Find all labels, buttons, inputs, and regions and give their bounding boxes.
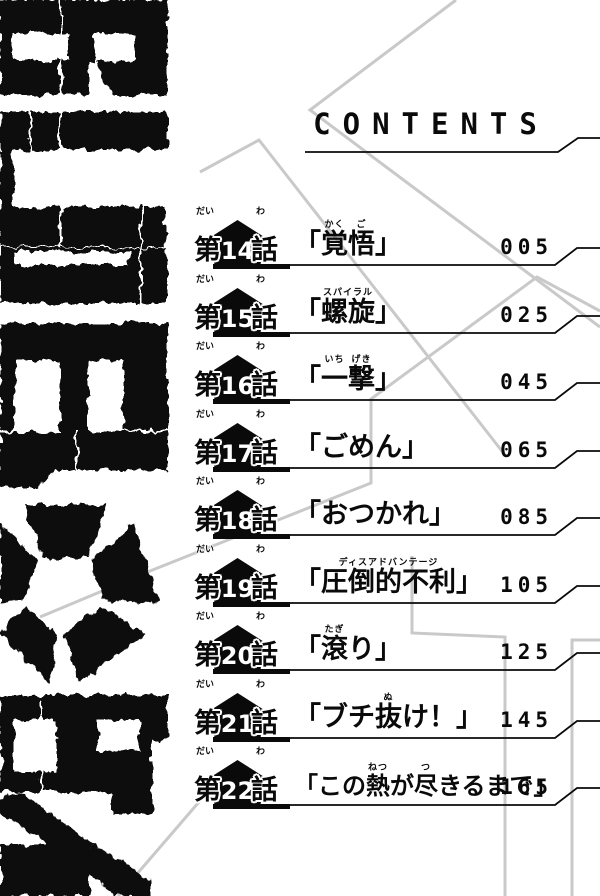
chapter-badge: 19 第 話 だい わ	[194, 555, 286, 605]
chapter-suffix: 話	[251, 304, 278, 334]
chapter-title: 「 おつかれ 」	[294, 492, 456, 531]
chapter-row: 19 第 話 だい わ 「 圧倒的不利ディスアドバンテージ 」 105	[194, 543, 600, 605]
contents-title: CONTENTS	[300, 107, 562, 143]
close-bracket: 」	[456, 695, 483, 734]
chapter-title-text: ごめん	[321, 425, 402, 464]
chapter-title: 「 滾たぎり 」	[294, 625, 402, 666]
chapter-suffix-furigana: わ	[256, 677, 265, 690]
chapter-title: 「 圧倒的不利ディスアドバンテージ 」	[294, 558, 483, 599]
title-kanji-with-furigana: 螺旋スパイラル	[321, 297, 375, 328]
chapter-title: 「 螺旋スパイラル 」	[294, 288, 402, 329]
open-bracket: 「	[294, 492, 321, 531]
chapter-title-text: ブチ抜ぬけ！	[321, 693, 456, 734]
chapter-row: 16 第 話 だい わ 「 一いち撃げき 」 045	[194, 340, 600, 402]
chapter-suffix: 話	[251, 776, 278, 806]
chapter-suffix-furigana: わ	[256, 272, 265, 285]
title-kanji-with-furigana: 尽つ	[414, 772, 438, 800]
chapter-suffix: 話	[251, 641, 278, 671]
title-kanji: 滾	[321, 634, 348, 665]
close-bracket: 」	[456, 560, 483, 599]
chapter-page-number: 065	[500, 438, 553, 462]
title-kanji-with-furigana: 抜ぬ	[375, 702, 402, 733]
bluelock-logo-art	[0, 0, 172, 896]
chapter-prefix-furigana: だい	[196, 677, 214, 690]
title-text: ごめん	[321, 432, 402, 463]
chapter-prefix: 第	[194, 574, 221, 604]
furigana: ねつ	[366, 763, 390, 773]
chapter-title-text: 一いち撃げき	[321, 355, 375, 396]
chapter-badge: 17 第 話 だい わ	[194, 420, 286, 470]
open-bracket: 「	[294, 695, 321, 734]
title-kanji: 悟	[348, 229, 375, 260]
furigana: げき	[348, 355, 375, 365]
chapter-suffix-furigana: わ	[256, 204, 265, 217]
chapter-row: 22 第 話 だい わ 「 この熱ねつが尽つきるまで 」 165	[194, 745, 600, 807]
title-text: が	[390, 772, 414, 800]
chapter-prefix: 第	[194, 641, 221, 671]
chapter-page-number: 145	[500, 708, 553, 732]
chapter-badge: 14 第 話 だい わ	[194, 217, 286, 267]
title-text: この	[318, 772, 366, 800]
title-kanji-with-furigana: 悟ご	[348, 229, 375, 260]
chapter-page-number: 045	[500, 370, 553, 394]
chapter-row: 17 第 話 だい わ 「 ごめん 」 065	[194, 408, 600, 470]
close-bracket: 」	[429, 492, 456, 531]
furigana: つ	[414, 763, 438, 773]
title-kanji: 覚	[321, 229, 348, 260]
chapter-suffix: 話	[251, 709, 278, 739]
close-bracket: 」	[375, 290, 402, 329]
chapter-row: 18 第 話 だい わ 「 おつかれ 」 085	[194, 475, 600, 537]
chapter-prefix-furigana: だい	[196, 542, 214, 555]
chapter-page-number: 085	[500, 505, 553, 529]
furigana: ご	[348, 220, 375, 230]
close-bracket: 」	[375, 357, 402, 396]
furigana: スパイラル	[321, 288, 375, 298]
furigana: たぎ	[321, 625, 348, 635]
title-kanji: 尽	[414, 772, 438, 800]
chapter-suffix: 話	[251, 506, 278, 536]
title-kanji: 熱	[366, 772, 390, 800]
chapter-prefix-furigana: だい	[196, 407, 214, 420]
chapter-title: 「 ブチ抜ぬけ！ 」	[294, 693, 483, 734]
chapter-suffix: 話	[251, 574, 278, 604]
chapter-prefix: 第	[194, 709, 221, 739]
chapter-suffix: 話	[251, 439, 278, 469]
chapter-prefix: 第	[194, 304, 221, 334]
title-text: ブチ	[321, 702, 375, 733]
title-kanji-with-furigana: 撃げき	[348, 364, 375, 395]
chapter-suffix: 話	[251, 371, 278, 401]
title-text: り	[348, 634, 375, 665]
chapter-page-number: 125	[500, 640, 553, 664]
chapter-title-text: 圧倒的不利ディスアドバンテージ	[321, 558, 456, 599]
chapter-suffix-furigana: わ	[256, 542, 265, 555]
chapter-row: 21 第 話 だい わ 「 ブチ抜ぬけ！ 」 145	[194, 678, 600, 740]
title-kanji: 圧倒的不利	[321, 567, 456, 598]
open-bracket: 「	[294, 357, 321, 396]
chapter-title-text: 滾たぎり	[321, 625, 375, 666]
chapter-page-number: 025	[500, 303, 553, 327]
chapter-row: 20 第 話 だい わ 「 滾たぎり 」 125	[194, 610, 600, 672]
chapter-badge: 16 第 話 だい わ	[194, 352, 286, 402]
chapter-prefix-furigana: だい	[196, 744, 214, 757]
title-kanji: 螺旋	[321, 297, 375, 328]
chapter-badge: 22 第 話 だい わ	[194, 757, 286, 807]
furigana: いち	[321, 355, 348, 365]
chapter-title: 「 一いち撃げき 」	[294, 355, 402, 396]
title-kanji: 抜	[375, 702, 402, 733]
title-text: おつかれ	[321, 499, 429, 530]
chapter-suffix: 話	[251, 236, 278, 266]
close-bracket: 」	[402, 425, 429, 464]
chapter-prefix: 第	[194, 371, 221, 401]
chapter-page-number: 105	[500, 573, 553, 597]
chapter-badge: 21 第 話 だい わ	[194, 690, 286, 740]
chapter-prefix-furigana: だい	[196, 339, 214, 352]
furigana: ディスアドバンテージ	[321, 558, 456, 568]
open-bracket: 「	[294, 222, 321, 261]
furigana: かく	[321, 220, 348, 230]
title-kanji-with-furigana: 圧倒的不利ディスアドバンテージ	[321, 567, 456, 598]
chapter-badge: 18 第 話 だい わ	[194, 487, 286, 537]
chapter-suffix-furigana: わ	[256, 407, 265, 420]
title-kanji: 撃	[348, 364, 375, 395]
chapter-page-number: 005	[500, 235, 553, 259]
chapter-title: 「 覚かく悟ご 」	[294, 220, 402, 261]
chapter-row: 15 第 話 だい わ 「 螺旋スパイラル 」 025	[194, 273, 600, 335]
chapter-prefix: 第	[194, 506, 221, 536]
chapter-badge: 15 第 話 だい わ	[194, 285, 286, 335]
title-text: け！	[402, 702, 456, 733]
close-bracket: 」	[375, 627, 402, 666]
chapter-row: 14 第 話 だい わ 「 覚かく悟ご 」 005	[194, 205, 600, 267]
chapter-suffix-furigana: わ	[256, 609, 265, 622]
furigana: ぬ	[375, 693, 402, 703]
chapter-prefix-furigana: だい	[196, 609, 214, 622]
open-bracket: 「	[294, 290, 321, 329]
close-bracket: 」	[375, 222, 402, 261]
chapter-suffix-furigana: わ	[256, 339, 265, 352]
chapter-badge: 20 第 話 だい わ	[194, 622, 286, 672]
chapter-prefix: 第	[194, 236, 221, 266]
open-bracket: 「	[294, 425, 321, 464]
chapter-title-text: おつかれ	[321, 492, 429, 531]
open-bracket: 「	[294, 627, 321, 666]
title-kanji-with-furigana: 熱ねつ	[366, 772, 390, 800]
open-bracket: 「	[294, 560, 321, 599]
open-bracket: 「	[294, 766, 318, 801]
chapter-title: 「 ごめん 」	[294, 425, 429, 464]
title-kanji-with-furigana: 滾たぎ	[321, 634, 348, 665]
chapter-page-number: 165	[500, 775, 553, 799]
title-kanji-with-furigana: 一いち	[321, 364, 348, 395]
chapter-title-text: 螺旋スパイラル	[321, 288, 375, 329]
chapter-prefix-furigana: だい	[196, 474, 214, 487]
title-kanji-with-furigana: 覚かく	[321, 229, 348, 260]
title-kanji: 一	[321, 364, 348, 395]
chapter-prefix: 第	[194, 776, 221, 806]
chapter-title-text: 覚かく悟ご	[321, 220, 375, 261]
chapter-prefix-furigana: だい	[196, 272, 214, 285]
chapter-prefix: 第	[194, 439, 221, 469]
chapter-suffix-furigana: わ	[256, 744, 265, 757]
chapter-suffix-furigana: わ	[256, 474, 265, 487]
chapter-prefix-furigana: だい	[196, 204, 214, 217]
